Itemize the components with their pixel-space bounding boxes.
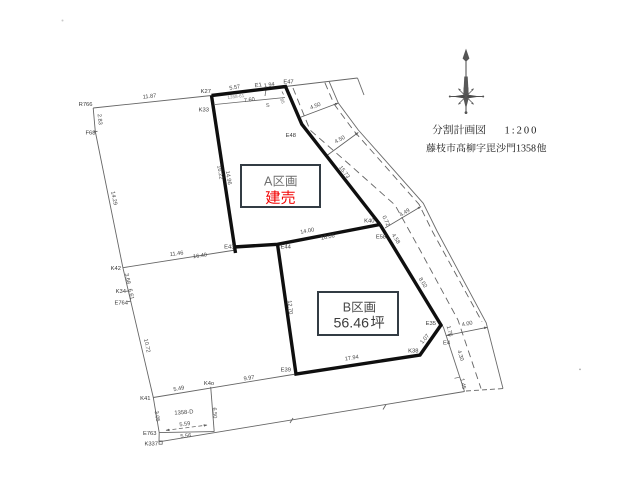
svg-text:K34: K34 — [116, 289, 127, 295]
svg-text:K42: K42 — [111, 266, 121, 272]
svg-text:E48: E48 — [286, 133, 296, 139]
svg-text:F68: F68 — [86, 130, 96, 136]
svg-text:E43: E43 — [224, 245, 234, 251]
svg-text:E4: E4 — [443, 341, 451, 347]
svg-text:1358: 1358 — [516, 144, 536, 155]
svg-text:E39: E39 — [281, 368, 291, 374]
svg-text:K4o: K4o — [204, 381, 214, 387]
svg-text:E764: E764 — [114, 300, 128, 306]
svg-text:A: A — [264, 175, 273, 189]
svg-text:K41: K41 — [140, 396, 150, 402]
svg-text:K337: K337 — [144, 442, 158, 448]
svg-text:E1: E1 — [254, 82, 262, 89]
svg-text:1:200: 1:200 — [505, 126, 539, 137]
svg-text:2.83: 2.83 — [96, 114, 103, 125]
svg-text:K40: K40 — [364, 219, 374, 225]
svg-text:B: B — [343, 301, 351, 315]
svg-text:56.46: 56.46 — [334, 316, 370, 332]
svg-text:E58: E58 — [376, 235, 386, 241]
svg-text:E47: E47 — [283, 80, 293, 86]
svg-text:K33: K33 — [199, 108, 209, 114]
svg-text:E35: E35 — [426, 321, 436, 327]
svg-text:6.50: 6.50 — [211, 407, 218, 418]
svg-text:K27: K27 — [201, 89, 211, 95]
svg-text:R766: R766 — [79, 102, 93, 108]
svg-text:K38: K38 — [408, 348, 418, 354]
svg-text:E763: E763 — [143, 431, 157, 437]
svg-text:E44: E44 — [281, 244, 292, 250]
